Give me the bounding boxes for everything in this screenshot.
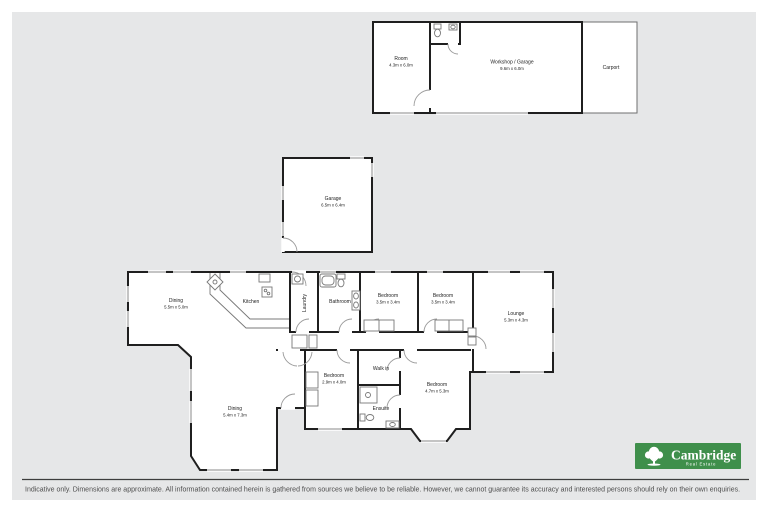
room-label-walkin: Walk in [373, 366, 389, 372]
footer-disclaimer: Indicative only. Dimensions are approxim… [25, 487, 740, 494]
brand-name: Cambridge [671, 448, 736, 463]
room-dims-bedroom4: 4.7m x 5.3m [425, 389, 449, 394]
room-label-garage: Garage [325, 196, 342, 202]
room-label-room: Room [394, 56, 407, 62]
brand-tagline: Real Estate [686, 462, 716, 467]
basin-icon [449, 24, 457, 30]
room-label-bathroom: Bathroom [329, 299, 351, 305]
room-label-workshop: Workshop / Garage [490, 60, 533, 66]
room-dims-dining2: 5.4m x 7.3m [223, 413, 247, 418]
room-dims-garage: 6.5m x 6.4m [321, 203, 345, 208]
building-garage: Garage 6.5m x 6.4m [283, 158, 372, 252]
room-label-bedroom4: Bedroom [427, 382, 447, 388]
room-dims-dining1: 5.5m x 5.0m [164, 305, 188, 310]
floorplan-page: Room 4.3m x 6.0m Workshop / Garage 9.6m … [0, 0, 768, 512]
room-label-bedroom3: Bedroom [324, 373, 344, 379]
room-label-carport: Carport [603, 65, 620, 71]
toilet-icon [434, 24, 441, 37]
workshop-outline [373, 22, 582, 113]
room-dims-room: 4.3m x 6.0m [389, 63, 413, 68]
floorplan-image: Room 4.3m x 6.0m Workshop / Garage 9.6m … [0, 0, 768, 512]
hall-cupboards [292, 335, 317, 348]
stove-icon [262, 287, 272, 297]
toilet-icon [337, 274, 345, 287]
room-label-ensuite: Ensuite [373, 406, 390, 412]
toilet-icon [360, 414, 374, 421]
room-dims-bedroom2: 3.5m x 3.4m [431, 300, 455, 305]
room-dims-lounge: 5.3m x 4.3m [504, 318, 528, 323]
real-estate-logo: Cambridge Real Estate [635, 443, 741, 469]
room-dims-workshop: 9.6m x 6.0m [500, 66, 524, 71]
vanity-icon [352, 291, 360, 310]
laundry-tub-icon [292, 274, 303, 284]
room-dims-bedroom1: 3.5m x 3.4m [376, 300, 400, 305]
room-label-laundry: Laundry [302, 293, 308, 312]
room-label-dining2: Dining [228, 406, 242, 412]
room-label-bedroom1: Bedroom [378, 293, 398, 299]
building-workshop: Room 4.3m x 6.0m Workshop / Garage 9.6m … [373, 22, 637, 113]
room-label-dining1: Dining [169, 298, 183, 304]
room-label-bedroom2: Bedroom [433, 293, 453, 299]
room-dims-bedroom3: 2.9m x 4.0m [322, 380, 346, 385]
vanity-icon [386, 421, 399, 428]
shower-icon [360, 387, 377, 403]
room-label-lounge: Lounge [508, 311, 525, 317]
fridge-icon [259, 274, 270, 282]
room-label-kitchen: Kitchen [243, 299, 260, 305]
bath-icon [320, 274, 336, 287]
